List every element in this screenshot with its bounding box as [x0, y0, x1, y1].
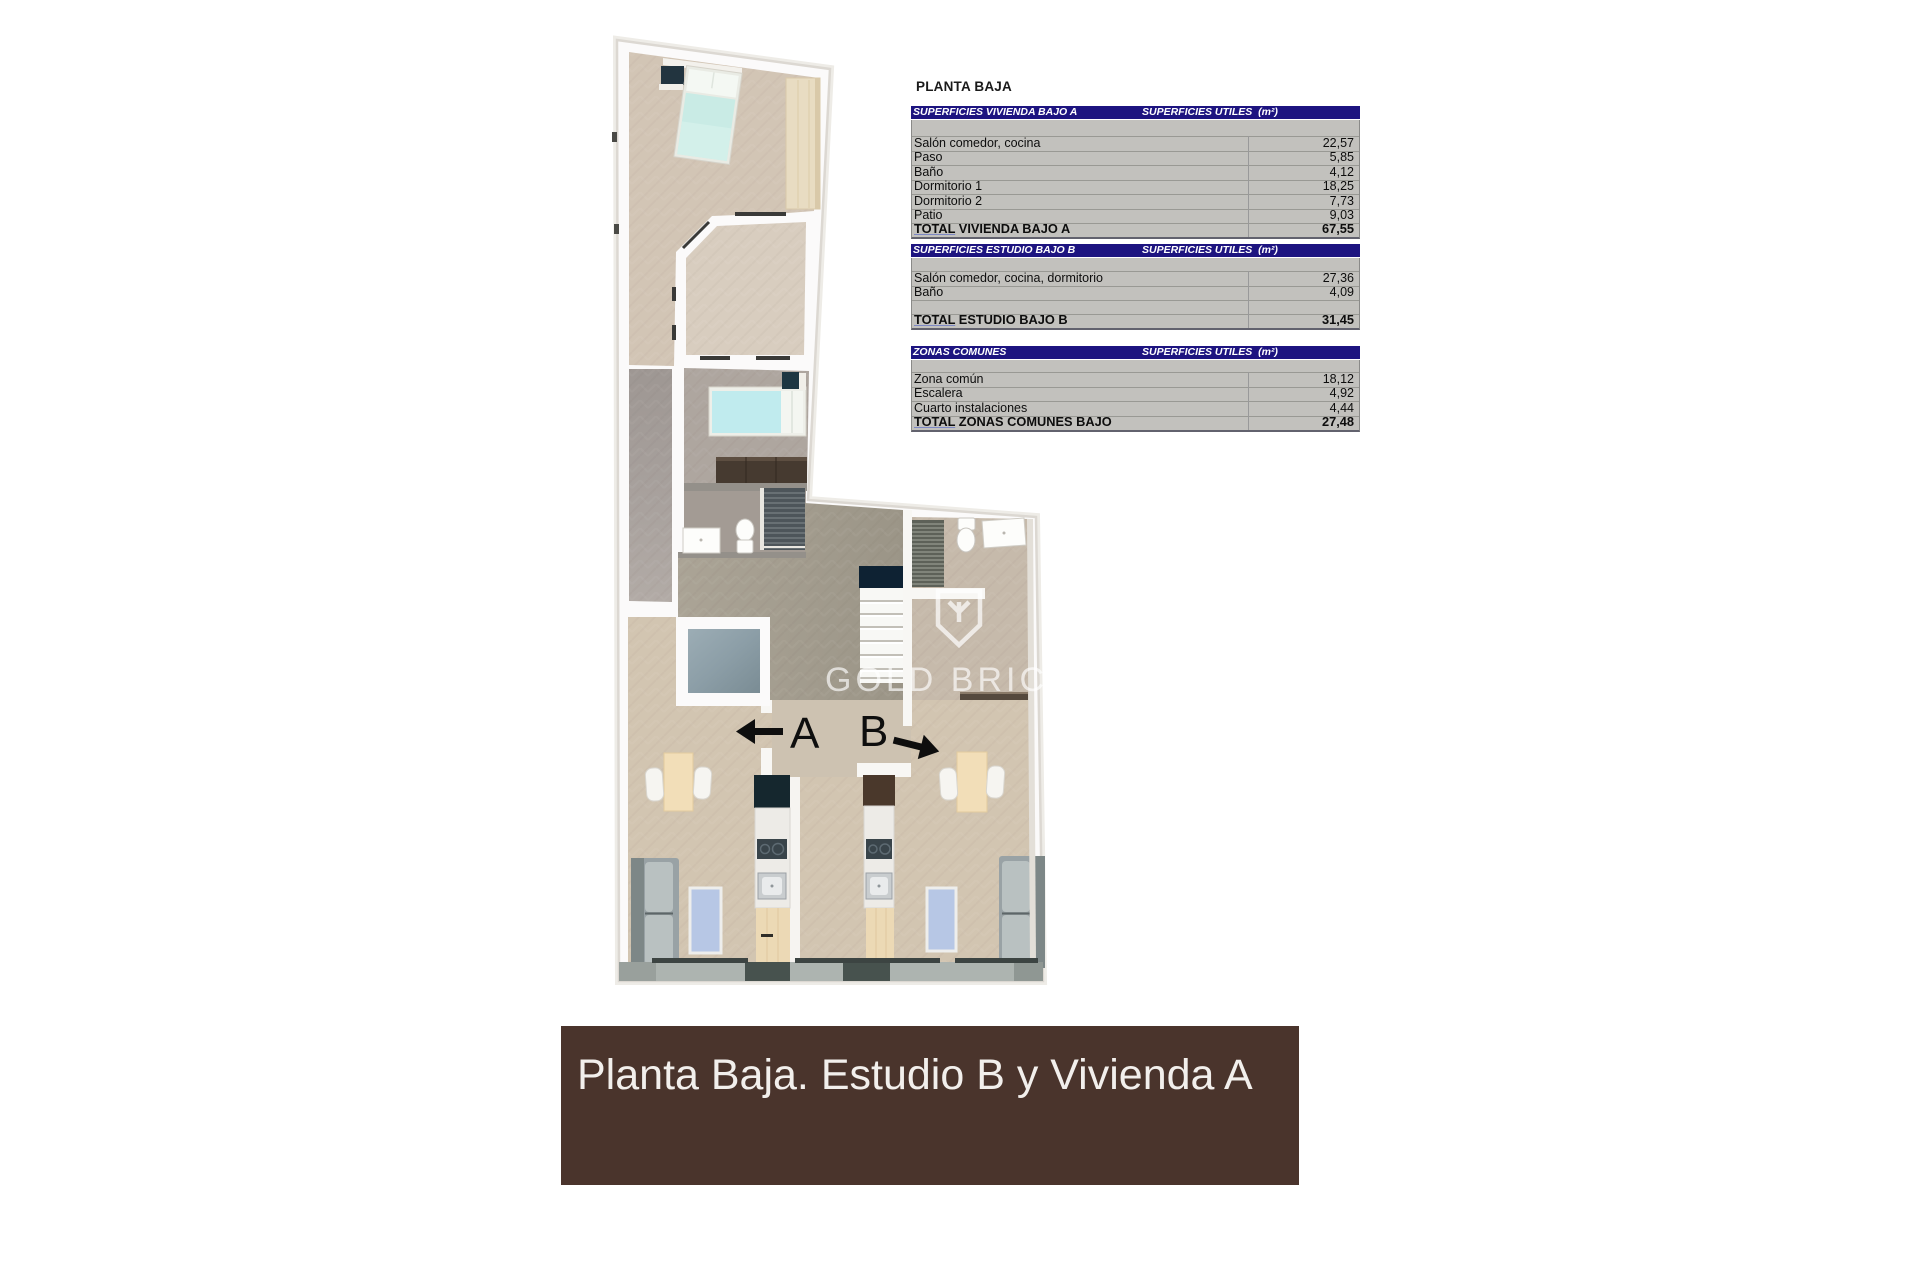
svg-text:B: B [859, 707, 888, 756]
svg-text:GOLD BRICK: GOLD BRICK [825, 661, 1075, 699]
svg-text:A: A [790, 709, 820, 758]
